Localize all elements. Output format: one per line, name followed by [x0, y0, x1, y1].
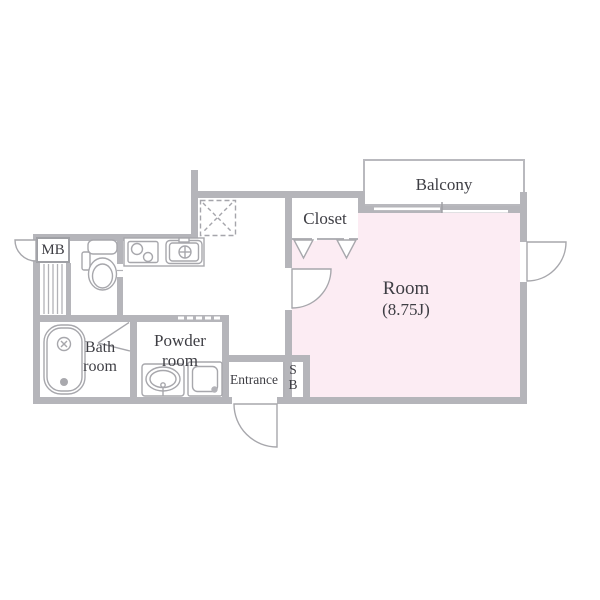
kitchen-counter — [124, 238, 204, 266]
wall-pipe-space-right — [66, 263, 71, 315]
room-size: (8.75J) — [336, 300, 476, 320]
wall-kitchen-top — [198, 191, 365, 198]
toilet-icon — [82, 240, 117, 290]
stove-icon — [128, 242, 158, 263]
balcony-label: Balcony — [384, 175, 504, 195]
kitchen-sink-icon — [166, 238, 202, 264]
meter-box-label: MB — [41, 242, 64, 259]
shoe-box-label: S B — [284, 363, 302, 393]
wall-right — [520, 192, 527, 404]
refrigerator-space-icon — [201, 201, 236, 236]
meter-box: MB — [36, 237, 70, 263]
bath-room-label: Bath room — [62, 339, 138, 376]
wall-shoe-box-right — [303, 362, 310, 397]
wall-balcony-window — [363, 206, 520, 213]
wall-bath-powder-top — [33, 315, 229, 322]
wall-bottom — [33, 397, 527, 404]
closet-label: Closet — [285, 209, 365, 229]
entrance-door-swing-icon — [234, 404, 277, 447]
wall-toilet-right — [117, 241, 123, 315]
entrance-label: Entrance — [226, 372, 282, 388]
floor-plan: MB — [0, 0, 600, 600]
right-exterior-door-swing-icon — [527, 242, 566, 281]
wall-kitchen-stub — [191, 170, 198, 234]
room-name: Room — [336, 278, 476, 300]
room-label: Room (8.75J) — [336, 278, 476, 320]
pipe-space-hatch — [44, 264, 62, 314]
powder-room-label: Powder room — [138, 331, 222, 370]
wall-entrance-top — [222, 355, 310, 362]
